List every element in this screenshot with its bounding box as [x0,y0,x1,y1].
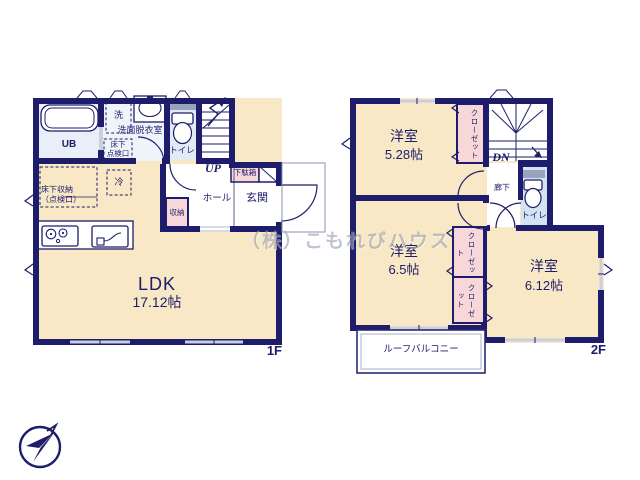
closet-1-label: クローゼット [464,107,480,161]
floor2-label: 2F [574,343,606,358]
room-528-name: 洋室 [370,129,438,145]
underfloor-hatch-label-2: 点検口 [105,150,131,158]
underfloor-storage-label-2: （点検口） [41,196,97,205]
kitchen-sink-icon [92,226,128,247]
corridor-label: 廊下 [489,184,515,193]
storage-label: 収納 [167,209,187,217]
floor1-label: 1F [250,344,282,359]
room-612-name: 洋室 [505,259,583,275]
underfloor-storage-label-1: 床下収納 [41,186,97,195]
ldk-label: LDK [97,274,217,294]
shoe-cabinet-label: 下駄箱 [232,169,258,177]
stairs-dn-label: DN [487,151,515,164]
bath-slide-door [99,127,103,150]
floor-plan: UB 洗面脱衣室 洗 床下 点検口 トイレ UP 下駄箱 玄関 ホール 収納 冷… [0,0,640,480]
ldk-size-label: 17.12帖 [97,295,217,311]
entrance-porch-outline [282,163,325,232]
room-528-size: 5.28帖 [370,148,438,163]
watermark: （株）こもれびハウス [241,226,451,253]
compass-icon [20,425,60,467]
entrance-door-arc [281,185,317,221]
closet-2-label: クローゼット [461,231,477,275]
kitchen-counter [38,221,133,249]
stairs-up-label: UP [198,162,228,175]
hall-label: ホール [200,194,234,205]
toilet-1f-label: トイレ [167,146,197,156]
bathtub-icon [41,105,98,131]
washroom-label: 洗面脱衣室 [112,125,168,135]
washer-label: 洗 [112,110,125,120]
room-612-size: 6.12帖 [505,279,583,294]
fridge-label: 冷 [112,177,126,187]
room-65-size: 6.5帖 [370,263,438,278]
closet-3-label: クローゼット [461,280,477,321]
entrance-label: 玄関 [236,192,278,204]
roof-balcony-label: ルーフバルコニー [356,345,486,356]
toilet-2f-label: トイレ [519,211,549,221]
stove-icon [42,226,78,246]
ub-label: UB [55,139,83,150]
